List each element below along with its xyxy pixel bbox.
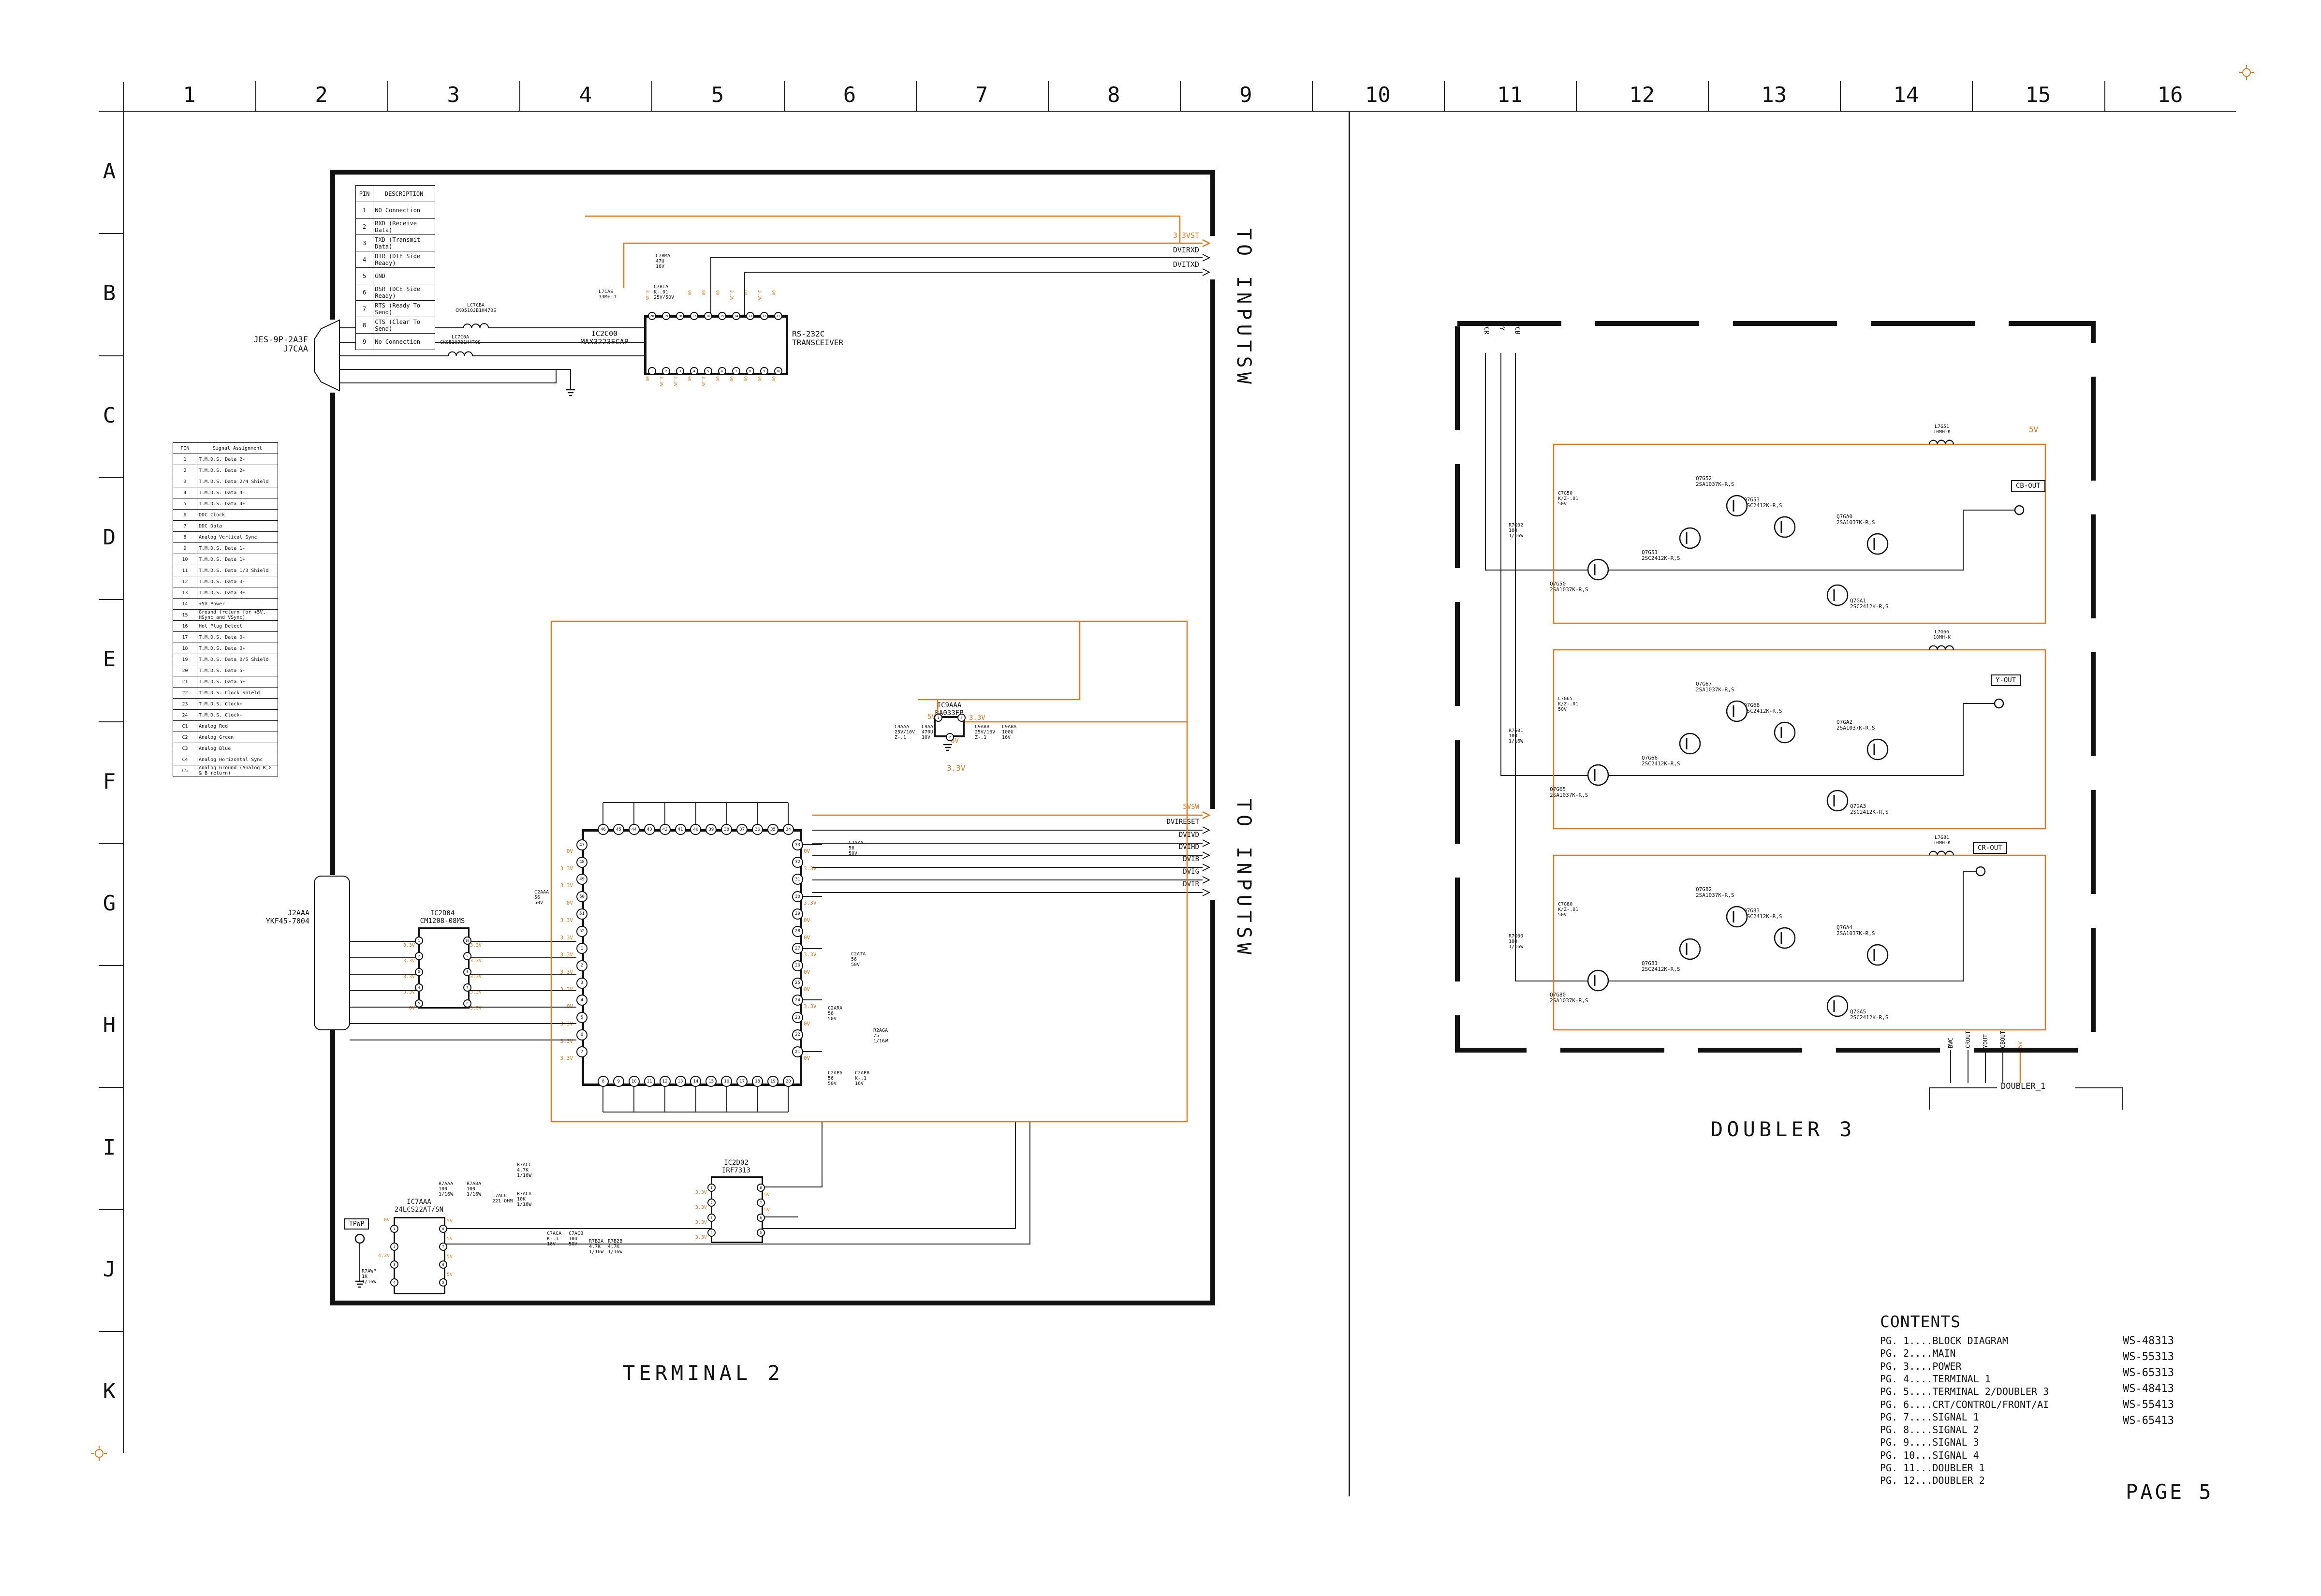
pin-circle: 3 <box>707 1214 716 1222</box>
table-cell: CTS (Clear To Send) <box>373 317 435 334</box>
table-cell: T.M.D.S. Data 4- <box>197 487 278 498</box>
pin-circle: 46 <box>598 824 609 835</box>
transistor-symbol <box>1867 739 1888 760</box>
output-terminal-label: CB-OUT <box>2011 480 2045 492</box>
table-cell: T.M.D.S. Data 0- <box>197 632 278 643</box>
pin-circle: 16 <box>704 312 712 320</box>
table-cell: 3 <box>356 235 373 251</box>
table-cell: 9 <box>356 334 373 350</box>
pin-circle: 6 <box>757 1214 765 1222</box>
table-header-cell: PIN <box>356 186 373 202</box>
transistor-symbol <box>1680 733 1700 754</box>
table-cell: T.M.D.S. Data 1- <box>197 543 278 554</box>
table-cell: DDC Data <box>197 521 278 532</box>
table-cell: NO Connection <box>373 202 435 219</box>
pin-circle: 1 <box>390 1225 398 1233</box>
table-cell: 10 <box>173 554 197 565</box>
pin-circle: 41 <box>675 824 686 835</box>
pin-circle: 1 <box>934 714 942 722</box>
table-cell: TXD (Transmit Data) <box>373 235 435 251</box>
pin-circle: 12 <box>760 312 768 320</box>
pin-circle: 30 <box>792 891 803 902</box>
pin-circle: 51 <box>576 908 588 920</box>
pin-circle: 35 <box>767 824 779 835</box>
pin-circle: 11 <box>774 312 782 320</box>
table-cell: RTS (Ready To Send) <box>373 301 435 317</box>
table-cell: T.M.D.S. Data 4+ <box>197 498 278 510</box>
table-cell: T.M.D.S. Data 5+ <box>197 676 278 688</box>
table-cell: T.M.D.S. Data 0+ <box>197 643 278 654</box>
table-cell: 21 <box>173 676 197 688</box>
pin-circle: 29 <box>792 908 803 920</box>
pin-circle: 2 <box>576 960 588 971</box>
pin-circle: 1 <box>707 1184 716 1192</box>
pin-circle: 3 <box>576 978 588 989</box>
pin-circle: 3 <box>676 367 684 375</box>
transistor-symbol <box>1775 722 1795 743</box>
pin-circle: 42 <box>660 824 671 835</box>
table-cell: 15 <box>173 610 197 621</box>
table-cell: C3 <box>173 743 197 754</box>
table-cell: DTR (DTE Side Ready) <box>373 251 435 268</box>
table-cell: 8 <box>356 317 373 334</box>
pin-circle: 2 <box>390 1243 398 1251</box>
pin-circle: 36 <box>752 824 763 835</box>
pin-circle: 2 <box>707 1199 716 1207</box>
table-cell: Analog Ground (Analog R,G & B return) <box>197 765 278 776</box>
pin-circle: 17 <box>736 1076 748 1087</box>
table-cell: Ground (return for +5V, HSync and VSync) <box>197 610 278 621</box>
pin-circle: 11 <box>644 1076 655 1087</box>
transistor-symbol <box>1867 945 1888 965</box>
pin-circle: 5 <box>415 999 423 1008</box>
pin-circle: 12 <box>660 1076 671 1087</box>
pin-circle: 17 <box>690 312 698 320</box>
pin-circle: 44 <box>629 824 640 835</box>
table-cell: Analog Vertical Sync <box>197 532 278 543</box>
table-cell: 11 <box>173 565 197 576</box>
table-cell: 19 <box>173 654 197 665</box>
pin-circle: 2 <box>662 367 670 375</box>
pin-circle: 45 <box>613 824 624 835</box>
pin-circle: 33 <box>792 839 803 850</box>
transistor-symbol <box>1588 970 1608 991</box>
pin-circle: 7 <box>757 1199 765 1207</box>
pin-circle: 5 <box>576 1012 588 1023</box>
table-cell: 23 <box>173 699 197 710</box>
table-cell: 8 <box>173 532 197 543</box>
pin-circle: 6 <box>463 999 471 1008</box>
ic-2d02-body <box>711 1176 763 1243</box>
pin-circle: 5 <box>439 1278 447 1287</box>
transistor-symbol <box>1588 765 1608 785</box>
transistor-symbol <box>1727 701 1747 721</box>
table-cell: 7 <box>173 521 197 532</box>
pin-circle: 9 <box>613 1076 624 1087</box>
pin-circle: 4 <box>390 1278 398 1287</box>
table-cell: 17 <box>173 632 197 643</box>
table-cell: 1 <box>356 202 373 219</box>
output-terminal-label: CR-OUT <box>1973 842 2007 854</box>
table-cell: DDC Clock <box>197 510 278 521</box>
schematic-page: 12345678910111213141516 ABCDEFGHIJK PIND… <box>0 0 2321 1596</box>
table-header-cell: Signal Assignment <box>197 443 278 454</box>
pin-circle: 8 <box>463 968 471 976</box>
table-cell: 3 <box>173 476 197 487</box>
ic-2d04-body <box>418 927 470 1009</box>
output-terminal-label: Y-OUT <box>1991 674 2021 686</box>
pin-circle: 19 <box>662 312 670 320</box>
pin-circle: 13 <box>675 1076 686 1087</box>
table-cell: T.M.D.S. Data 3- <box>197 576 278 587</box>
pin-circle: 20 <box>783 1076 794 1087</box>
pin-description-table: PINDESCRIPTION1NO Connection2RXD (Receiv… <box>355 185 435 350</box>
table-cell: T.M.D.S. Data 2/4 Shield <box>197 476 278 487</box>
table-cell: 14 <box>173 599 197 610</box>
pin-circle: 4 <box>690 367 698 375</box>
pin-circle: 19 <box>767 1076 779 1087</box>
pin-circle: 6 <box>576 1029 588 1040</box>
signal-assignment-table: PINSignal Assignment1T.M.D.S. Data 2-2T.… <box>173 442 278 776</box>
transistor-symbol <box>1775 928 1795 948</box>
table-cell: 22 <box>173 688 197 699</box>
table-cell: 1 <box>173 454 197 465</box>
transistor-symbol <box>1775 517 1795 537</box>
table-cell: 5 <box>356 268 373 284</box>
transistor-symbol <box>1827 996 1848 1016</box>
transistor-symbol <box>1588 559 1608 580</box>
table-cell: RXD (Receive Data) <box>373 219 435 235</box>
table-cell: 2 <box>356 219 373 235</box>
table-cell: 18 <box>173 643 197 654</box>
pin-circle: 9 <box>760 367 768 375</box>
pin-circle: 47 <box>576 839 588 850</box>
pin-circle: 52 <box>576 926 588 937</box>
pin-circle: 5 <box>757 1229 765 1237</box>
ic-7aaa-body <box>394 1217 445 1294</box>
pin-circle: 8 <box>757 1184 765 1192</box>
tpwp-testpoint: TPWP <box>344 1218 369 1230</box>
table-cell: C1 <box>173 721 197 732</box>
pin-circle: 10 <box>629 1076 640 1087</box>
pin-circle: 18 <box>676 312 684 320</box>
table-cell: 7 <box>356 301 373 317</box>
table-cell: C2 <box>173 732 197 743</box>
pin-circle: 20 <box>648 312 656 320</box>
pin-circle: 26 <box>792 960 803 971</box>
table-cell: 6 <box>356 284 373 301</box>
table-cell: 13 <box>173 587 197 599</box>
table-cell: C5 <box>173 765 197 776</box>
pin-circle: 37 <box>736 824 748 835</box>
pin-circle: 10 <box>463 937 471 945</box>
table-cell: Analog Green <box>197 732 278 743</box>
table-cell: T.M.D.S. Clock Shield <box>197 688 278 699</box>
pin-circle: 7 <box>732 367 740 375</box>
transistor-symbol <box>1827 585 1848 605</box>
pin-circle: 3 <box>415 968 423 976</box>
table-cell: 2 <box>173 465 197 476</box>
ic-max3223-body <box>644 315 788 375</box>
table-cell: T.M.D.S. Data 2- <box>197 454 278 465</box>
table-cell: Hot Plug Detect <box>197 621 278 632</box>
transistor-symbol <box>1680 528 1700 548</box>
table-cell: T.M.D.S. Data 1+ <box>197 554 278 565</box>
pin-circle: 2 <box>946 733 954 741</box>
table-cell: Analog Horizontal Sync <box>197 754 278 765</box>
pin-circle: 48 <box>576 857 588 868</box>
pin-circle: 50 <box>576 891 588 902</box>
table-cell: T.M.D.S. Data 5- <box>197 665 278 676</box>
table-cell: T.M.D.S. Data 2+ <box>197 465 278 476</box>
table-cell: +5V Power <box>197 599 278 610</box>
table-cell: 9 <box>173 543 197 554</box>
pin-circle: 10 <box>774 367 782 375</box>
table-header-cell: PIN <box>173 443 197 454</box>
transistor-symbol <box>1827 791 1848 811</box>
pin-circle: 8 <box>439 1225 447 1233</box>
pin-circle: 8 <box>746 367 754 375</box>
pin-circle: 32 <box>792 857 803 868</box>
table-cell: T.M.D.S. Data 1/3 Shield <box>197 565 278 576</box>
pin-circle: 5 <box>704 367 712 375</box>
pin-circle: 1 <box>415 937 423 945</box>
ic-main-body <box>582 829 802 1086</box>
pin-circle: 25 <box>792 978 803 989</box>
transistor-symbol <box>1727 496 1747 516</box>
pin-circle: 15 <box>718 312 726 320</box>
table-cell: 4 <box>173 487 197 498</box>
table-cell: 4 <box>356 251 373 268</box>
table-cell: 20 <box>173 665 197 676</box>
pin-circle: 43 <box>644 824 655 835</box>
pin-circle: 8 <box>598 1076 609 1087</box>
pin-circle: 1 <box>648 367 656 375</box>
pin-circle: 4 <box>707 1229 716 1237</box>
table-header-cell: DESCRIPTION <box>373 186 435 202</box>
pin-circle: 3 <box>390 1260 398 1269</box>
table-cell: 6 <box>173 510 197 521</box>
table-cell: No Connection <box>373 334 435 350</box>
table-cell: T.M.D.S. Clock+ <box>197 699 278 710</box>
pin-circle: 13 <box>746 312 754 320</box>
transistor-symbol <box>1727 907 1747 927</box>
table-cell: T.M.D.S. Data 3+ <box>197 587 278 599</box>
pin-circle: 6 <box>718 367 726 375</box>
pin-circle: 18 <box>752 1076 763 1087</box>
table-cell: T.M.D.S. Data 0/5 Shield <box>197 654 278 665</box>
pin-circle: 23 <box>792 1012 803 1023</box>
pin-circle: 6 <box>439 1260 447 1269</box>
table-cell: 12 <box>173 576 197 587</box>
table-cell: 16 <box>173 621 197 632</box>
table-cell: 5 <box>173 498 197 510</box>
table-cell: Analog Red <box>197 721 278 732</box>
table-cell: Analog Blue <box>197 743 278 754</box>
pin-circle: 28 <box>792 926 803 937</box>
pin-circle: 3 <box>957 714 966 722</box>
pin-circle: 22 <box>792 1029 803 1040</box>
table-cell: GND <box>373 268 435 284</box>
pin-circle: 7 <box>439 1243 447 1251</box>
transistor-symbol <box>1680 939 1700 959</box>
pin-circle: 34 <box>783 824 794 835</box>
pin-circle: 14 <box>732 312 740 320</box>
table-cell: C4 <box>173 754 197 765</box>
transistor-symbol <box>1867 534 1888 554</box>
wire-layer <box>0 0 2321 1596</box>
table-cell: T.M.D.S. Clock- <box>197 710 278 721</box>
table-cell: 24 <box>173 710 197 721</box>
table-cell: DSR (DCE Side Ready) <box>373 284 435 301</box>
